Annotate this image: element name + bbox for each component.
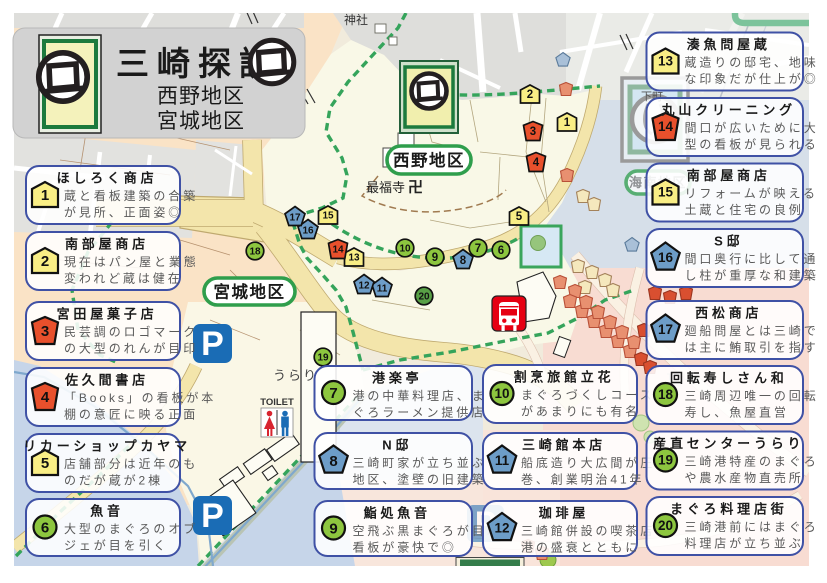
- svg-text:TOILET: TOILET: [260, 397, 294, 408]
- svg-text:三崎町家が立ち並ぶ: 三崎町家が立ち並ぶ: [353, 455, 487, 470]
- svg-text:リフォームが映える: リフォームが映える: [685, 186, 818, 201]
- svg-text:5: 5: [41, 455, 49, 472]
- svg-text:三崎館本店: 三崎館本店: [522, 438, 606, 453]
- svg-text:16: 16: [658, 250, 674, 265]
- svg-text:8: 8: [460, 255, 467, 267]
- svg-text:看板が豪快で◎: 看板が豪快で◎: [353, 540, 457, 555]
- svg-text:まぐろ料理店街: まぐろ料理店街: [670, 502, 788, 517]
- svg-text:ほしろく商店: ほしろく商店: [57, 171, 158, 186]
- svg-text:空飛ぶ黒まぐろが目印: 空飛ぶ黒まぐろが目印: [353, 523, 502, 538]
- svg-text:1: 1: [41, 187, 49, 204]
- svg-text:割烹旅館立花: 割烹旅館立花: [514, 370, 615, 385]
- svg-text:9: 9: [432, 252, 438, 264]
- svg-text:ジェが目を引く: ジェが目を引く: [64, 538, 168, 553]
- svg-text:廻船問屋とは三崎で: 廻船問屋とは三崎で: [685, 324, 819, 338]
- svg-text:P: P: [201, 325, 224, 363]
- svg-text:8: 8: [329, 453, 337, 470]
- svg-text:港の盛衰とともに: 港の盛衰とともに: [521, 540, 640, 555]
- svg-text:蔵造りの邸宅、地味: 蔵造りの邸宅、地味: [685, 55, 819, 70]
- svg-text:P: P: [201, 497, 224, 535]
- svg-text:13: 13: [348, 253, 360, 264]
- svg-text:産直センターうらり: 産直センターうらり: [653, 436, 804, 451]
- svg-text:が見所、正面姿◎: が見所、正面姿◎: [64, 205, 183, 220]
- svg-text:港の中華料理店、ま: 港の中華料理店、ま: [353, 388, 487, 403]
- svg-text:し柱が重厚な和建築: し柱が重厚な和建築: [685, 268, 819, 283]
- svg-text:最福寺: 最福寺: [366, 180, 405, 195]
- svg-text:現在はパン屋と業態: 現在はパン屋と業態: [64, 254, 199, 269]
- svg-text:19: 19: [658, 453, 673, 468]
- svg-text:9: 9: [329, 520, 337, 537]
- svg-text:南部屋商店: 南部屋商店: [687, 168, 771, 183]
- svg-text:「Books」の看板が本: 「Books」の看板が本: [64, 390, 216, 405]
- svg-text:変われど蔵は健在: 変われど蔵は健在: [64, 271, 183, 286]
- svg-text:S邸: S邸: [714, 234, 743, 249]
- svg-text:4: 4: [41, 389, 50, 406]
- svg-text:3: 3: [530, 126, 536, 138]
- svg-text:ぐろラーメン提供店: ぐろラーメン提供店: [353, 405, 487, 420]
- svg-text:港楽亭: 港楽亭: [372, 371, 422, 386]
- svg-text:7: 7: [329, 385, 337, 402]
- svg-text:西野地区: 西野地区: [157, 85, 245, 108]
- svg-text:20: 20: [418, 292, 430, 303]
- svg-text:3: 3: [41, 323, 49, 340]
- svg-text:店舗部分は近年のも: 店舗部分は近年のも: [64, 456, 198, 471]
- svg-text:14: 14: [658, 119, 674, 134]
- svg-text:宮田屋菓子店: 宮田屋菓子店: [57, 307, 158, 322]
- svg-text:1: 1: [564, 117, 571, 129]
- svg-text:間口が広いために大: 間口が広いために大: [685, 120, 819, 135]
- svg-text:10: 10: [399, 244, 411, 255]
- svg-text:大型のまぐろのオブ: 大型のまぐろのオブ: [64, 521, 198, 536]
- svg-text:14: 14: [332, 245, 344, 256]
- svg-text:棚の意匠に映る正面: 棚の意匠に映る正面: [64, 407, 198, 422]
- svg-text:宮城地区: 宮城地区: [214, 281, 286, 301]
- svg-text:うらり: うらり: [273, 368, 318, 383]
- svg-text:10: 10: [494, 386, 509, 401]
- svg-text:西松商店: 西松商店: [695, 306, 762, 321]
- svg-text:巻、創業明治41年: 巻、創業明治41年: [521, 473, 644, 487]
- svg-text:13: 13: [658, 54, 674, 69]
- svg-text:魚音: 魚音: [90, 504, 124, 519]
- svg-text:佐久間書店: 佐久間書店: [64, 373, 149, 388]
- svg-text:は主に鮪取引を指す: は主に鮪取引を指す: [685, 340, 819, 355]
- svg-text:19: 19: [317, 353, 329, 364]
- svg-text:鮨処魚音: 鮨処魚音: [364, 506, 431, 521]
- svg-text:2: 2: [527, 89, 533, 101]
- svg-text:6: 6: [498, 245, 504, 257]
- svg-text:宮城地区: 宮城地区: [157, 110, 245, 133]
- svg-text:西野地区: 西野地区: [393, 150, 465, 170]
- svg-text:12: 12: [494, 521, 509, 536]
- svg-text:や農水産物直売所: や農水産物直売所: [685, 470, 804, 485]
- svg-text:型の看板が見られる: 型の看板が見られる: [685, 137, 819, 152]
- svg-text:20: 20: [658, 518, 673, 533]
- svg-text:南部屋商店: 南部屋商店: [65, 237, 149, 252]
- svg-text:4: 4: [533, 157, 540, 169]
- svg-text:5: 5: [516, 211, 523, 223]
- svg-text:のだが蔵が2棟: のだが蔵が2棟: [64, 473, 163, 488]
- svg-text:18: 18: [249, 247, 261, 258]
- svg-text:珈琲屋: 珈琲屋: [539, 506, 589, 521]
- svg-text:16: 16: [302, 226, 314, 237]
- svg-text:な印象だが仕上が◎: な印象だが仕上が◎: [685, 71, 819, 86]
- svg-text:回転寿しさん和: 回転寿しさん和: [670, 371, 788, 386]
- svg-text:11: 11: [495, 453, 510, 468]
- svg-text:三崎港特産のまぐろ: 三崎港特産のまぐろ: [685, 454, 819, 469]
- svg-text:湊魚問屋蔵: 湊魚問屋蔵: [687, 37, 771, 52]
- svg-text:17: 17: [658, 322, 673, 337]
- svg-text:丸山クリーニング: 丸山クリーニング: [661, 103, 796, 118]
- svg-text:7: 7: [475, 243, 481, 255]
- svg-text:15: 15: [322, 211, 334, 222]
- svg-text:蔵と看板建築の合築: 蔵と看板建築の合築: [64, 188, 198, 203]
- svg-text:15: 15: [658, 185, 674, 200]
- svg-text:地区、塗壁の旧建築: 地区、塗壁の旧建築: [353, 472, 487, 487]
- svg-text:の大型のれんが目印: の大型のれんが目印: [64, 341, 198, 356]
- svg-text:6: 6: [41, 519, 49, 536]
- svg-text:寿し、魚屋直営: 寿し、魚屋直営: [685, 406, 789, 420]
- svg-text:があまりにも有名: があまりにも有名: [521, 404, 640, 419]
- svg-text:N邸: N邸: [382, 438, 412, 453]
- svg-text:まぐろづくしコース: まぐろづくしコース: [521, 388, 655, 402]
- svg-text:料理店が立ち並ぶ: 料理店が立ち並ぶ: [685, 536, 804, 551]
- svg-text:2: 2: [41, 253, 49, 270]
- svg-text:船底造り大広間が圧: 船底造り大広間が圧: [521, 455, 655, 470]
- svg-text:12: 12: [358, 281, 370, 292]
- svg-text:三崎港前にはまぐろ: 三崎港前にはまぐろ: [685, 519, 819, 534]
- svg-text:リカーショップカヤマ: リカーショップカヤマ: [23, 439, 191, 454]
- svg-text:間口奥行に比して通: 間口奥行に比して通: [685, 252, 819, 266]
- svg-text:三崎周辺唯一の回転: 三崎周辺唯一の回転: [685, 389, 819, 403]
- svg-text:18: 18: [658, 387, 674, 402]
- svg-text:神社: 神社: [344, 12, 368, 27]
- svg-text:土蔵と住宅の良例: 土蔵と住宅の良例: [685, 202, 804, 217]
- svg-text:卍: 卍: [408, 179, 423, 196]
- svg-text:民芸調のロゴマーク: 民芸調のロゴマーク: [64, 324, 198, 339]
- svg-text:17: 17: [289, 213, 301, 224]
- svg-text:11: 11: [377, 284, 388, 295]
